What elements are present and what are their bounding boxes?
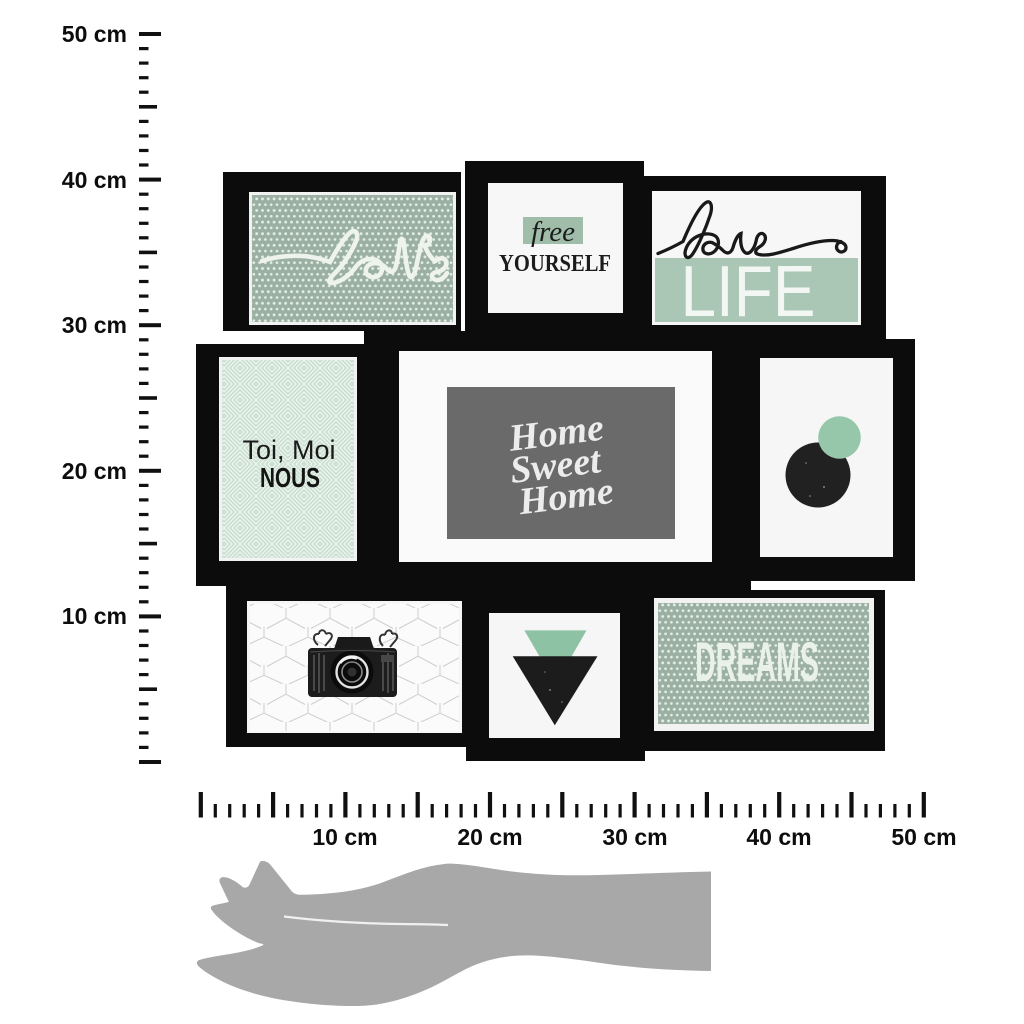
- svg-text:LIFE: LIFE: [681, 252, 816, 332]
- svg-text:50 cm: 50 cm: [891, 824, 956, 850]
- svg-text:20 cm: 20 cm: [457, 824, 522, 850]
- svg-text:40 cm: 40 cm: [62, 167, 127, 193]
- svg-text:YOURSELF: YOURSELF: [499, 251, 611, 277]
- svg-text:10 cm: 10 cm: [62, 603, 127, 629]
- svg-text:DREAMS: DREAMS: [695, 630, 819, 693]
- svg-text:free: free: [531, 216, 575, 248]
- svg-text:NOUS: NOUS: [260, 462, 320, 493]
- svg-text:30 cm: 30 cm: [62, 312, 127, 338]
- svg-text:10 cm: 10 cm: [312, 824, 377, 850]
- svg-text:Toi, Moi: Toi, Moi: [242, 435, 335, 465]
- svg-text:20 cm: 20 cm: [62, 458, 127, 484]
- svg-text:40 cm: 40 cm: [746, 824, 811, 850]
- svg-text:50 cm: 50 cm: [62, 21, 127, 47]
- svg-text:30 cm: 30 cm: [602, 824, 667, 850]
